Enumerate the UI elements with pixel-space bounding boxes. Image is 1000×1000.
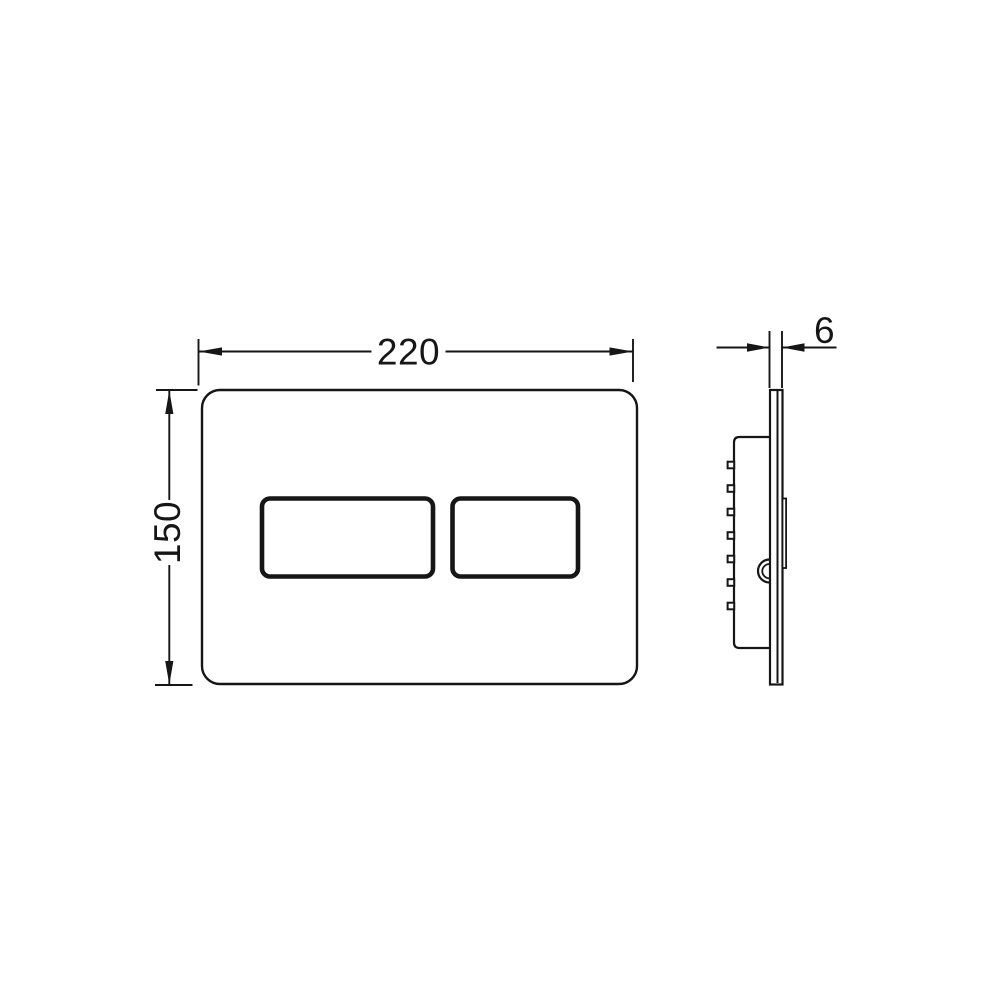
plate-profile (770, 390, 783, 685)
thickness-arrowhead-right (782, 343, 805, 351)
button-protrusion-profile (783, 499, 787, 569)
flush-button-small (453, 499, 579, 577)
width-arrowhead-left (199, 347, 223, 355)
front-view (202, 390, 637, 684)
mounting-frame (734, 437, 770, 648)
side-view (728, 390, 787, 685)
mounting-clip (728, 603, 735, 610)
thickness-dimension: 6 (717, 310, 837, 388)
width-dimension-label: 220 (377, 332, 440, 373)
height-dimension: 150 (147, 390, 198, 685)
mounting-clip (728, 509, 735, 516)
thickness-arrowhead-left (747, 343, 770, 351)
height-arrowhead-top (165, 391, 173, 415)
width-dimension: 220 (199, 332, 634, 386)
mounting-clip (728, 556, 735, 563)
flush-plate-dimension-drawing: 220 150 (0, 0, 1000, 1000)
mounting-clip (728, 462, 735, 469)
technical-drawing-canvas: 220 150 (0, 0, 1000, 1000)
height-dimension-label: 150 (147, 501, 188, 564)
width-arrowhead-right (610, 347, 634, 355)
mounting-clip (728, 485, 735, 492)
mounting-clip (728, 579, 735, 586)
height-arrowhead-bottom (165, 661, 173, 685)
mounting-clip (728, 532, 735, 539)
flush-button-large (262, 499, 433, 577)
thickness-dimension-label: 6 (814, 310, 835, 351)
